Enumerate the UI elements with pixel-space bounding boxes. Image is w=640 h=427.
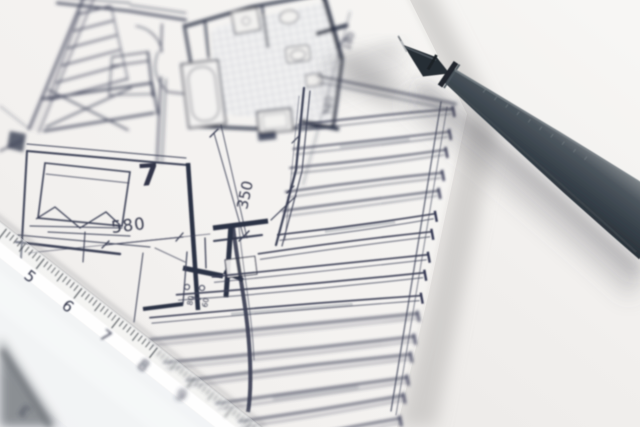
shower (231, 8, 260, 34)
bathroom (181, 0, 348, 141)
bathroom-fixture (305, 73, 322, 87)
wall-nib (258, 130, 277, 141)
scene-photo: 180 180 7 580 (0, 0, 640, 427)
bathtub (181, 60, 226, 128)
laundry-box (257, 108, 293, 133)
dimension-label-80: 80 (185, 295, 196, 306)
room-number-label: 7 (137, 158, 160, 194)
toilet (285, 45, 311, 64)
